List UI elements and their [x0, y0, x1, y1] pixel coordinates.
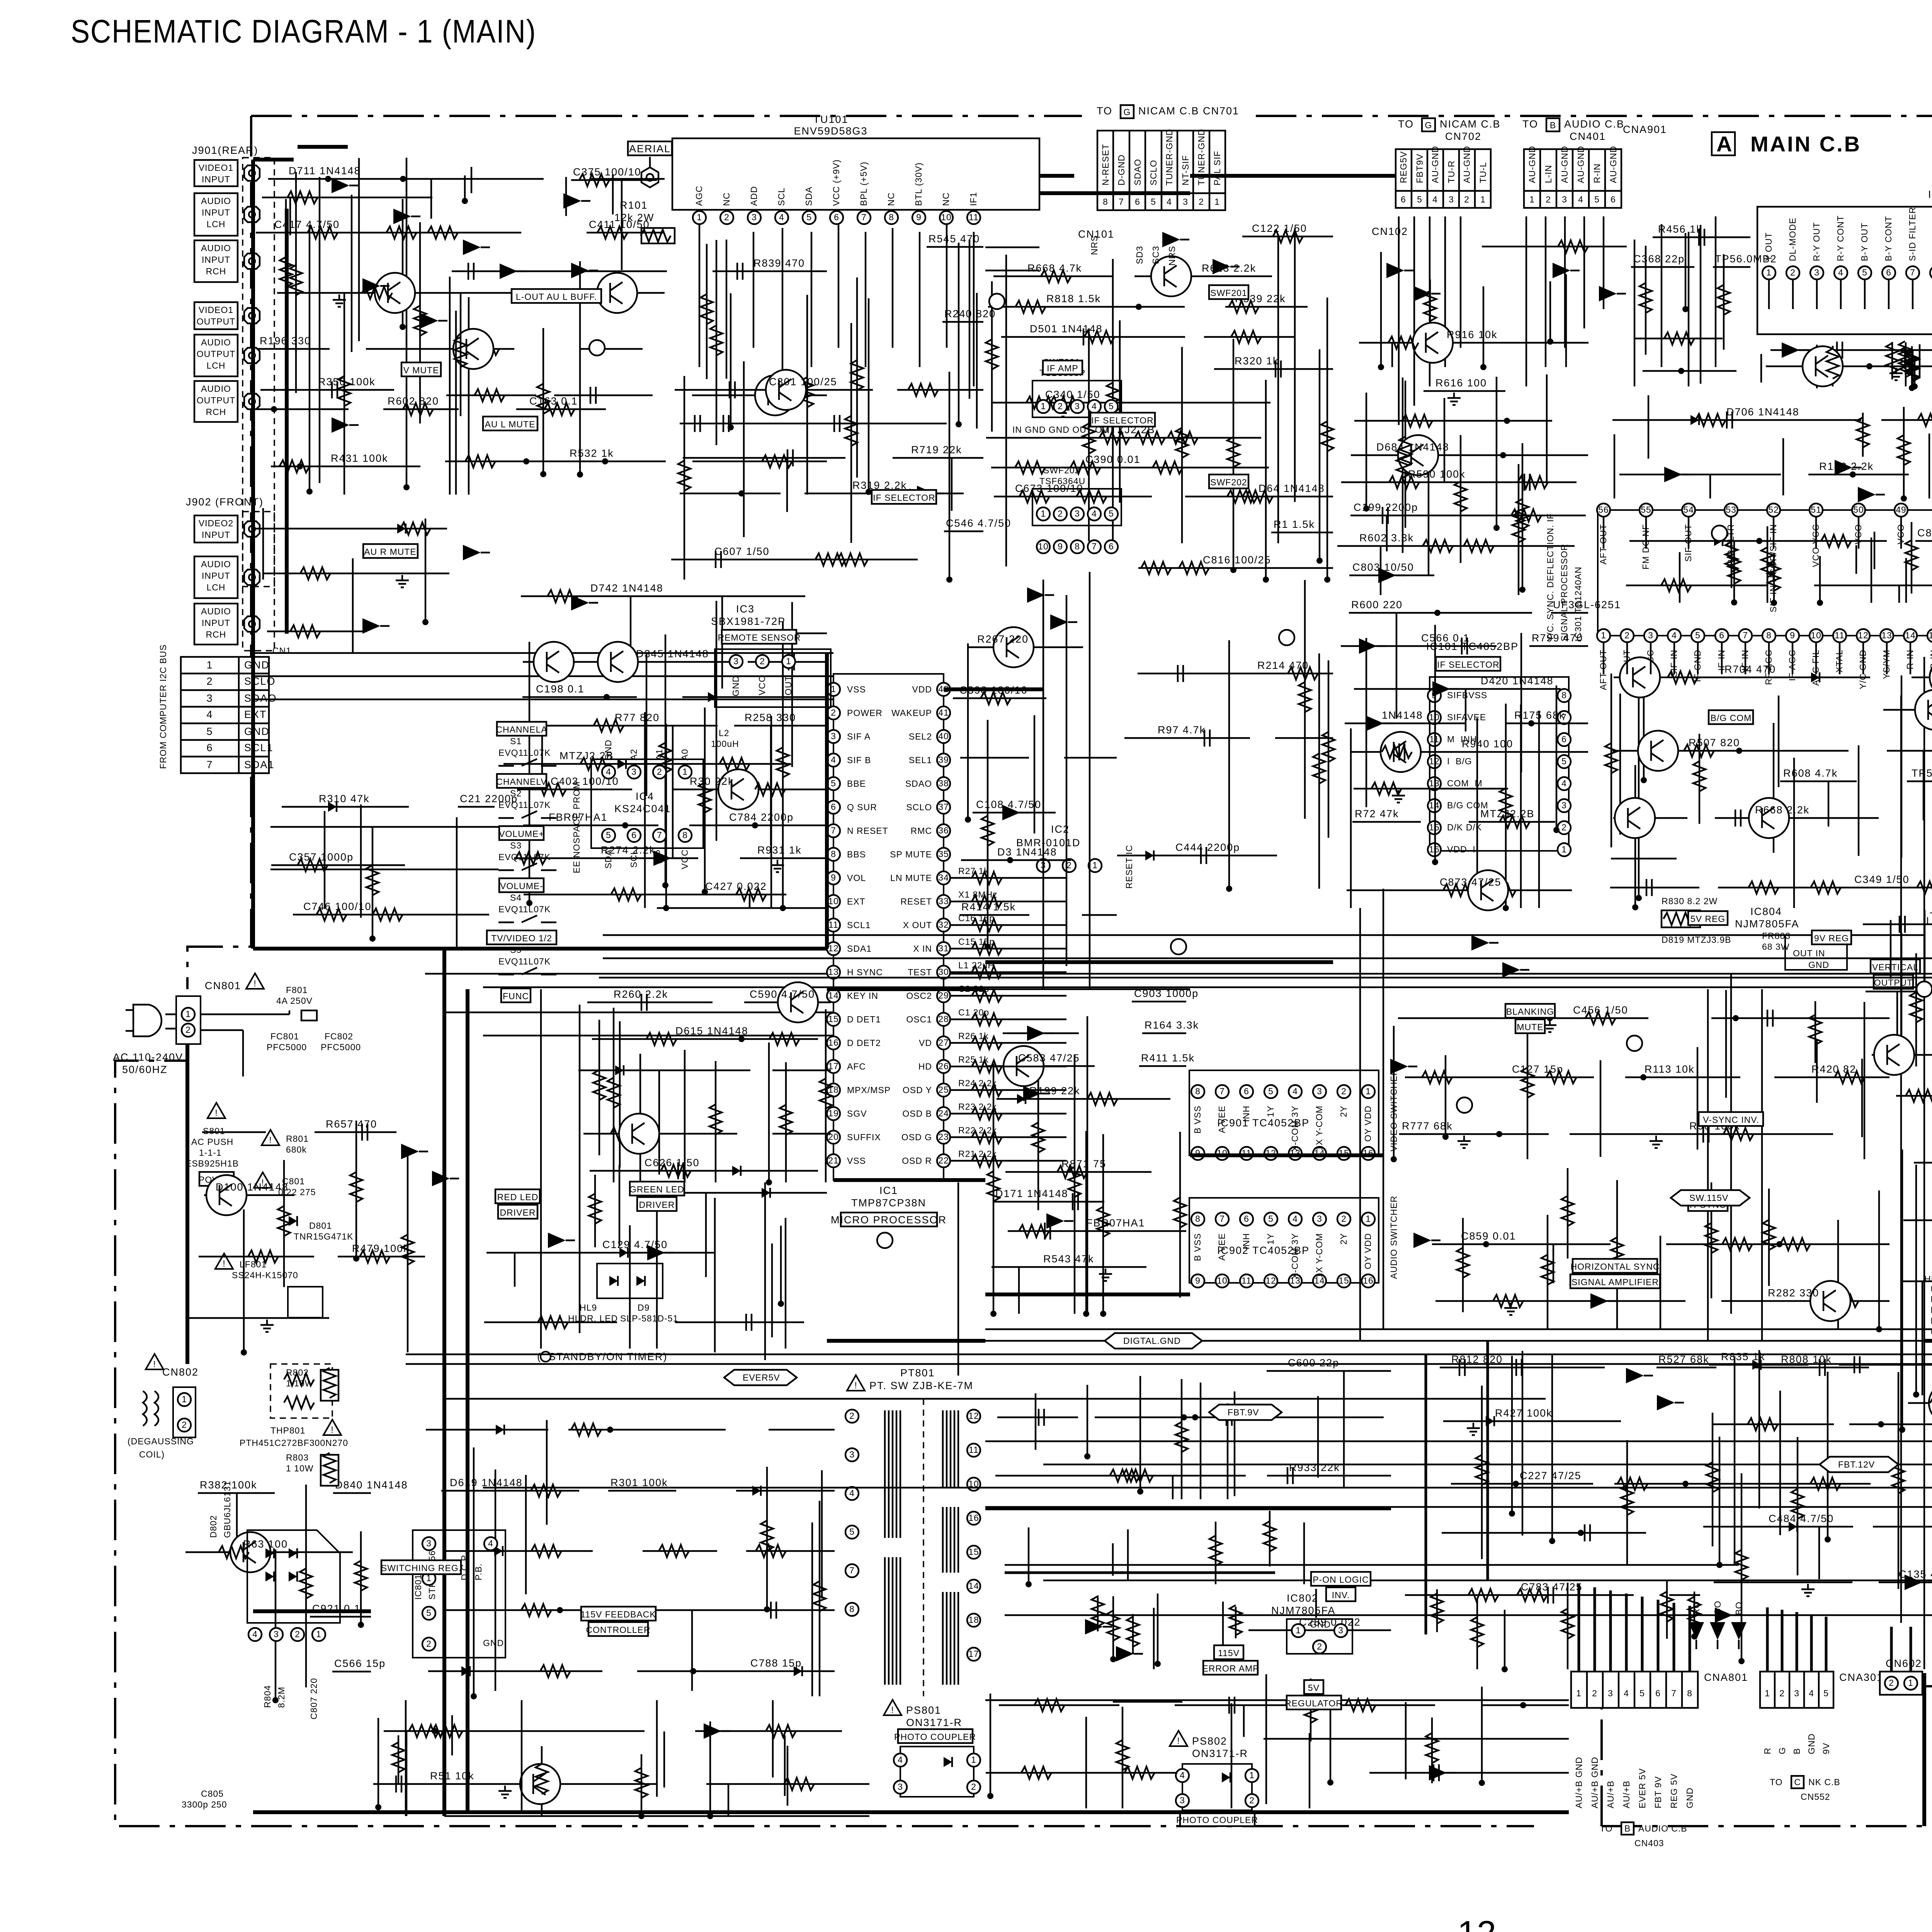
svg-text:1: 1: [786, 656, 791, 666]
svg-text:FBT 9V: FBT 9V: [1653, 1776, 1663, 1808]
svg-text:4: 4: [1838, 267, 1844, 277]
svg-text:R940 100: R940 100: [1462, 738, 1513, 750]
svg-text:18: 18: [968, 1615, 979, 1625]
svg-text:5: 5: [1594, 194, 1600, 204]
svg-text:DRIVER: DRIVER: [500, 1207, 536, 1218]
svg-text:2: 2: [182, 1420, 187, 1430]
svg-text:PFC5000: PFC5000: [267, 1042, 307, 1052]
svg-text:SWF202: SWF202: [1043, 465, 1080, 475]
svg-text:4A 250V: 4A 250V: [276, 996, 313, 1006]
svg-text:SEL1: SEL1: [909, 755, 932, 765]
svg-text:DRIVER: DRIVER: [639, 1200, 675, 1210]
svg-text:GND: GND: [244, 659, 270, 671]
svg-text:2Y: 2Y: [1338, 1105, 1349, 1117]
svg-text:SCLO: SCLO: [906, 802, 932, 812]
svg-text:OUT IN: OUT IN: [1793, 948, 1825, 958]
svg-text:SLP-581D-51: SLP-581D-51: [620, 1313, 678, 1323]
svg-text:D420 1N4148: D420 1N4148: [1481, 675, 1554, 687]
svg-text:R258 330: R258 330: [745, 712, 796, 723]
svg-text:EVQ11L07K: EVQ11L07K: [498, 748, 551, 758]
svg-text:NJM7805FA: NJM7805FA: [1735, 918, 1799, 930]
svg-text:S-ID FILTER: S-ID FILTER: [1907, 207, 1917, 261]
svg-text:3: 3: [1561, 800, 1567, 810]
svg-text:12: 12: [1265, 1276, 1276, 1286]
svg-text:26: 26: [938, 1061, 949, 1071]
svg-text:2: 2: [1341, 1086, 1347, 1096]
svg-text:RESET: RESET: [900, 896, 932, 906]
svg-text:CN802: CN802: [162, 1366, 199, 1378]
svg-text:TO: TO: [1522, 118, 1538, 130]
svg-text:R835 1k: R835 1k: [1721, 1351, 1765, 1362]
svg-text:8: 8: [1561, 690, 1567, 700]
svg-text:CONTROLLER: CONTROLLER: [586, 1625, 650, 1635]
svg-text:1: 1: [1529, 194, 1535, 204]
svg-text:FBT9V: FBT9V: [1415, 153, 1425, 183]
svg-text:VIDEO2: VIDEO2: [199, 518, 233, 528]
svg-text:3: 3: [274, 1629, 279, 1639]
svg-text:AC 110-240V: AC 110-240V: [113, 1051, 183, 1063]
svg-text:INPUT: INPUT: [202, 571, 230, 581]
svg-text:TP56.0MB2: TP56.0MB2: [1912, 767, 1932, 779]
svg-text:1: 1: [1908, 1678, 1913, 1688]
svg-text:2: 2: [1317, 1641, 1322, 1651]
svg-text:2: 2: [971, 1782, 976, 1792]
svg-text:L-IN: L-IN: [1543, 165, 1553, 183]
svg-text:MAIN C.B: MAIN C.B: [1750, 132, 1861, 156]
svg-text:ADD: ADD: [749, 186, 759, 206]
svg-text:4: 4: [488, 1538, 493, 1548]
svg-text:VOL: VOL: [847, 873, 866, 883]
svg-text:AUDIO: AUDIO: [201, 606, 231, 616]
svg-text:SEL2: SEL2: [909, 731, 932, 742]
svg-text:B-Y CONT: B-Y CONT: [1883, 216, 1893, 261]
svg-text:SDAO: SDAO: [244, 692, 277, 704]
svg-text:14: 14: [828, 990, 839, 1000]
svg-text:ON3171-R: ON3171-R: [1192, 1748, 1248, 1759]
svg-text:6: 6: [1655, 1688, 1661, 1698]
svg-text:D819 MTZJ3.9B: D819 MTZJ3.9B: [1662, 935, 1731, 945]
svg-text:FROM COMPUTER I2C BUS: FROM COMPUTER I2C BUS: [158, 644, 168, 769]
svg-text:SC3: SC3: [1151, 246, 1161, 264]
svg-text:C784 2200p: C784 2200p: [729, 811, 794, 823]
svg-text:D171 1N4148: D171 1N4148: [995, 1188, 1068, 1199]
svg-text:14: 14: [968, 1581, 979, 1591]
svg-text:5: 5: [1561, 756, 1567, 766]
svg-text:GREEN LED: GREEN LED: [629, 1184, 684, 1194]
svg-text:3: 3: [898, 1782, 903, 1792]
svg-text:IF SELECTOR: IF SELECTOR: [1091, 415, 1153, 425]
svg-text:6: 6: [831, 802, 836, 812]
svg-text:PT801: PT801: [900, 1367, 935, 1379]
svg-text:( STANDBY/ON TIMER): ( STANDBY/ON TIMER): [537, 1351, 668, 1362]
svg-text:R-IN: R-IN: [1592, 163, 1602, 183]
svg-text:10: 10: [941, 212, 952, 222]
svg-text:6: 6: [1401, 194, 1406, 204]
svg-text:UF3GL-6251: UF3GL-6251: [1553, 599, 1621, 611]
svg-text:GND: GND: [1310, 1619, 1331, 1629]
svg-text:30: 30: [938, 967, 949, 977]
svg-text:R260 2.2k: R260 2.2k: [614, 988, 668, 1000]
svg-text:R803: R803: [286, 1452, 309, 1463]
svg-text:AU/+B: AU/+B: [1621, 1781, 1631, 1808]
svg-text:D742 1N4148: D742 1N4148: [590, 582, 663, 594]
svg-text:6: 6: [1244, 1086, 1249, 1096]
svg-text:TUNER-GND: TUNER-GND: [1164, 129, 1174, 185]
svg-text:RESET IC: RESET IC: [1124, 845, 1134, 889]
svg-text:PFC5000: PFC5000: [321, 1042, 361, 1052]
svg-text:A VEE: A VEE: [1217, 1105, 1227, 1133]
svg-text:12: 12: [968, 1411, 979, 1421]
svg-text:4: 4: [206, 709, 213, 720]
svg-text:TV/VIDEO 1/2: TV/VIDEO 1/2: [491, 933, 552, 943]
svg-text:AUDIO: AUDIO: [201, 243, 231, 253]
svg-text:EE NOSPACE PROM: EE NOSPACE PROM: [571, 781, 582, 873]
svg-text:RCH: RCH: [206, 407, 226, 417]
svg-text:S4: S4: [510, 893, 522, 903]
svg-text:R799 470: R799 470: [1532, 632, 1583, 644]
svg-text:R30 22k: R30 22k: [690, 776, 734, 787]
svg-text:KS24C041I: KS24C041I: [614, 803, 675, 815]
svg-text:GO: GO: [1713, 1600, 1723, 1615]
svg-text:C129 4.7/50: C129 4.7/50: [602, 1239, 668, 1250]
svg-text:R431 100k: R431 100k: [331, 452, 388, 464]
svg-text:IC3: IC3: [736, 603, 755, 615]
svg-text:TU-R: TU-R: [1446, 160, 1456, 183]
svg-text:HL9: HL9: [580, 1303, 597, 1313]
svg-text:1: 1: [1041, 509, 1046, 519]
svg-text:B-Y OUT: B-Y OUT: [1859, 223, 1869, 261]
svg-text:R543 47k: R543 47k: [1043, 1253, 1094, 1265]
svg-text:9V: 9V: [1821, 1743, 1831, 1754]
svg-text:SIGNAL PROCESSOR: SIGNAL PROCESSOR: [1559, 544, 1569, 641]
svg-text:R507 820: R507 820: [1689, 737, 1740, 748]
svg-text:SCL: SCL: [629, 849, 639, 868]
svg-text:3300p 250: 3300p 250: [182, 1799, 227, 1810]
svg-text:C583 47/25: C583 47/25: [1018, 1052, 1080, 1064]
svg-text:R777 68k: R777 68k: [1402, 1120, 1453, 1132]
svg-text:3: 3: [1180, 1795, 1185, 1805]
svg-text:Q SUR: Q SUR: [847, 802, 877, 812]
svg-text:AUDIO: AUDIO: [201, 337, 231, 347]
svg-text:3: 3: [1794, 1688, 1799, 1698]
svg-text:2: 2: [295, 1629, 300, 1639]
svg-text:9: 9: [1195, 1276, 1201, 1286]
svg-text:ERROR AMP: ERROR AMP: [1202, 1663, 1259, 1673]
svg-text:1 10W: 1 10W: [286, 1463, 313, 1473]
svg-text:6: 6: [834, 212, 839, 222]
svg-text:R427 100k: R427 100k: [1495, 1407, 1553, 1419]
svg-text:EXT: EXT: [847, 896, 866, 906]
svg-text:IC1: IC1: [879, 1185, 898, 1196]
svg-text:L-OUT AU L BUFF.: L-OUT AU L BUFF.: [516, 292, 597, 302]
svg-text:EVQ11L07K: EVQ11L07K: [498, 852, 551, 862]
svg-text:5: 5: [1268, 1214, 1274, 1224]
svg-text:3: 3: [1608, 1688, 1613, 1698]
svg-text:EVQ11L07K: EVQ11L07K: [498, 800, 551, 810]
svg-text:1: 1: [1041, 401, 1046, 411]
svg-text:R214 470: R214 470: [1257, 660, 1309, 671]
svg-text:FC802: FC802: [325, 1031, 353, 1041]
svg-text:2: 2: [1058, 401, 1063, 411]
svg-text:5: 5: [1151, 197, 1156, 207]
svg-text:LCH: LCH: [206, 361, 225, 371]
svg-text:V-SYNC INV.: V-SYNC INV.: [1703, 1115, 1759, 1125]
svg-text:R183 2.2k: R183 2.2k: [1819, 461, 1874, 472]
svg-text:PS801: PS801: [906, 1704, 941, 1716]
svg-text:53: 53: [1726, 505, 1736, 515]
svg-text:1X Y-COM: 1X Y-COM: [1314, 1105, 1324, 1151]
svg-text:OUTPUT: OUTPUT: [1874, 978, 1913, 988]
svg-text:C807 220: C807 220: [309, 1678, 319, 1719]
svg-text:OSD G: OSD G: [901, 1132, 932, 1142]
svg-text:AU-GND: AU-GND: [1576, 146, 1586, 183]
svg-text:5: 5: [1268, 1086, 1274, 1096]
svg-text:50/60HZ: 50/60HZ: [122, 1064, 168, 1075]
svg-text:1 10W: 1 10W: [286, 1378, 313, 1388]
svg-text:AC PUSH: AC PUSH: [191, 1137, 233, 1147]
svg-text:11: 11: [828, 920, 838, 930]
svg-text:LN MUTE: LN MUTE: [890, 873, 932, 883]
svg-text:1: 1: [182, 1394, 187, 1404]
svg-text:EVER5V: EVER5V: [743, 1372, 780, 1383]
svg-text:28: 28: [938, 1014, 949, 1024]
svg-text:A1: A1: [654, 749, 664, 760]
svg-text:4: 4: [1561, 778, 1567, 788]
svg-text:R668 2.2k: R668 2.2k: [1755, 804, 1810, 816]
svg-text:1: 1: [1480, 194, 1486, 204]
svg-text:CN801: CN801: [205, 980, 241, 992]
svg-text:REG 5V: REG 5V: [1669, 1774, 1679, 1808]
svg-text:CHANNELV: CHANNELV: [496, 777, 547, 787]
svg-text:2: 2: [185, 1025, 191, 1035]
svg-text:R196 330: R196 330: [260, 335, 311, 347]
svg-text:BO: BO: [1734, 1602, 1744, 1615]
svg-text:IF1: IF1: [968, 192, 978, 206]
svg-text:CN403: CN403: [1634, 1838, 1664, 1848]
svg-text:INV.: INV.: [1332, 1590, 1350, 1600]
svg-text:2: 2: [1199, 197, 1204, 207]
svg-text:AUDIO: AUDIO: [201, 196, 231, 206]
svg-text:R63 100: R63 100: [243, 1538, 288, 1550]
svg-text:TU101: TU101: [813, 114, 848, 125]
svg-text:GND: GND: [1808, 960, 1829, 970]
svg-text:R97 4.7k: R97 4.7k: [1158, 724, 1206, 736]
svg-text:11: 11: [969, 1445, 979, 1455]
svg-text:2: 2: [724, 212, 730, 222]
svg-text:8: 8: [1195, 1086, 1201, 1096]
svg-text:INPUT: INPUT: [202, 207, 230, 218]
svg-text:P-ON LOGIC: P-ON LOGIC: [1313, 1575, 1369, 1585]
svg-text:6: 6: [1719, 630, 1725, 640]
svg-text:VSS: VSS: [847, 684, 866, 694]
svg-text:R-Y CONT: R-Y CONT: [1835, 215, 1845, 261]
svg-text:R77 820: R77 820: [615, 712, 660, 723]
svg-text:SDAO: SDAO: [905, 779, 932, 789]
svg-text:C427 0.022: C427 0.022: [705, 881, 767, 892]
svg-text:1: 1: [316, 1629, 321, 1639]
svg-text:FBR07HA1: FBR07HA1: [1086, 1217, 1145, 1229]
svg-text:RCH: RCH: [206, 629, 226, 639]
svg-text:1: 1: [697, 212, 702, 222]
svg-text:4: 4: [1432, 194, 1438, 204]
svg-text:TO: TO: [1770, 1777, 1783, 1787]
svg-text:680k: 680k: [286, 1145, 307, 1155]
svg-text:6: 6: [1109, 541, 1114, 551]
svg-text:BTL (30V): BTL (30V): [913, 162, 923, 206]
svg-text:EVQ11L07K: EVQ11L07K: [498, 904, 551, 914]
svg-text:INH: INH: [1241, 1233, 1251, 1250]
svg-text:GND: GND: [731, 675, 741, 696]
svg-text:NRS: NRS: [1089, 235, 1099, 255]
svg-text:WAKEUP: WAKEUP: [891, 708, 932, 718]
svg-text:SDA1: SDA1: [847, 944, 872, 954]
svg-text:1N4148: 1N4148: [1382, 709, 1423, 721]
svg-text:WP: WP: [654, 849, 664, 864]
svg-text:C566 15p: C566 15p: [334, 1658, 386, 1669]
svg-text:C15 15p: C15 15p: [958, 937, 995, 947]
svg-text:AU/+B GND: AU/+B GND: [1574, 1757, 1584, 1808]
svg-text:TU-L: TU-L: [1478, 162, 1488, 183]
svg-text:2: 2: [1790, 267, 1796, 277]
svg-text:B: B: [1624, 1823, 1631, 1833]
svg-text:REG5V: REG5V: [1398, 151, 1408, 183]
svg-text:4: 4: [252, 1629, 258, 1639]
svg-text:8: 8: [849, 1604, 855, 1614]
svg-text:SIFAVEE: SIFAVEE: [1447, 712, 1486, 722]
svg-text:OSC2: OSC2: [906, 991, 932, 1001]
svg-text:C566 0.1: C566 0.1: [1421, 632, 1470, 644]
svg-text:3: 3: [1317, 1086, 1322, 1096]
svg-text:100uH: 100uH: [711, 739, 739, 749]
svg-text:SDA: SDA: [804, 187, 814, 206]
svg-text:2: 2: [1561, 822, 1567, 832]
svg-text:X IN: X IN: [913, 944, 932, 954]
svg-text:15: 15: [968, 1547, 979, 1557]
svg-text:3: 3: [1814, 267, 1820, 277]
svg-text:GND: GND: [1806, 1733, 1816, 1754]
svg-text:7: 7: [861, 212, 867, 222]
svg-text:R616 100: R616 100: [1435, 377, 1487, 389]
svg-text:39: 39: [938, 755, 949, 765]
svg-text:S2: S2: [510, 788, 522, 798]
svg-text:50: 50: [1853, 505, 1864, 515]
svg-text:11: 11: [1242, 1276, 1252, 1286]
svg-text:D9: D9: [638, 1303, 650, 1313]
svg-text:DIGTAL.GND: DIGTAL.GND: [1123, 1336, 1181, 1346]
svg-text:C349 1/50: C349 1/50: [1854, 874, 1910, 885]
svg-text:2: 2: [1058, 509, 1063, 519]
svg-text:B/G COM: B/G COM: [1711, 713, 1752, 723]
svg-text:SUFFIX: SUFFIX: [847, 1132, 881, 1142]
svg-text:TO: TO: [1600, 1823, 1613, 1833]
svg-text:SGV: SGV: [847, 1109, 867, 1119]
svg-text:D840 1N4148: D840 1N4148: [335, 1479, 408, 1491]
svg-text:6: 6: [206, 742, 213, 753]
svg-text:D706 1N4148: D706 1N4148: [1726, 406, 1799, 418]
svg-text:NJM7805FA: NJM7805FA: [1271, 1605, 1336, 1616]
svg-text:SS24H-K15070: SS24H-K15070: [232, 1270, 298, 1280]
svg-text:INPUT: INPUT: [202, 530, 230, 540]
svg-text:C880 2200p: C880 2200p: [1917, 527, 1932, 539]
svg-text:VIDEO1: VIDEO1: [199, 305, 233, 315]
svg-text:41: 41: [938, 707, 949, 718]
svg-text:21: 21: [828, 1155, 839, 1165]
svg-text:IC4: IC4: [636, 791, 654, 802]
svg-text:3: 3: [1317, 1214, 1322, 1224]
svg-text:D801: D801: [309, 1221, 332, 1231]
svg-text:R830 8.2 2W: R830 8.2 2W: [1662, 896, 1718, 906]
svg-text:SP MUTE: SP MUTE: [890, 849, 932, 859]
svg-text:2Y: 2Y: [1338, 1233, 1349, 1245]
svg-text:SCLO: SCLO: [244, 675, 276, 687]
svg-text:R602 3.3k: R602 3.3k: [1359, 532, 1414, 544]
svg-text:R1 1.5k: R1 1.5k: [1274, 519, 1315, 530]
svg-text:4: 4: [1293, 1086, 1298, 1096]
svg-text:B VSS: B VSS: [1192, 1233, 1202, 1261]
svg-text:3: 3: [1449, 194, 1454, 204]
svg-text:R25 1k: R25 1k: [958, 1054, 989, 1065]
svg-text:R602 820: R602 820: [388, 395, 439, 407]
svg-text:AU-GND: AU-GND: [1608, 146, 1618, 183]
svg-text:VERTICAL: VERTICAL: [1872, 962, 1918, 972]
svg-text:R21 2.2k: R21 2.2k: [958, 1149, 997, 1159]
svg-text:8: 8: [1075, 541, 1080, 551]
svg-text:3: 3: [1075, 509, 1080, 519]
svg-text:1Y: 1Y: [1265, 1105, 1276, 1117]
svg-text:R175 68k: R175 68k: [1514, 709, 1565, 721]
svg-text:4: 4: [1180, 1770, 1185, 1780]
svg-text:AU-GND: AU-GND: [1527, 146, 1537, 183]
svg-text:C417 4.7/50: C417 4.7/50: [274, 219, 340, 230]
svg-text:D DET1: D DET1: [847, 1014, 881, 1024]
svg-text:115V: 115V: [1218, 1648, 1240, 1658]
svg-text:ENV59D58G3: ENV59D58G3: [794, 125, 867, 137]
svg-text:3: 3: [1648, 630, 1653, 640]
svg-text:C301 100/25: C301 100/25: [769, 376, 837, 388]
svg-text:CNA301: CNA301: [1839, 1672, 1883, 1683]
svg-text:SIGNAL AMPLIFIER: SIGNAL AMPLIFIER: [1571, 1277, 1659, 1287]
svg-text:SWITCHING REG.: SWITCHING REG.: [381, 1563, 461, 1573]
svg-text:1: 1: [1366, 1214, 1371, 1224]
svg-text:OSD R: OSD R: [902, 1156, 932, 1166]
svg-text:7: 7: [849, 1565, 855, 1575]
svg-text:INPUT: INPUT: [202, 255, 230, 265]
svg-text:VIDEO1: VIDEO1: [199, 163, 233, 173]
svg-text:IF SELECTOR: IF SELECTOR: [1437, 660, 1499, 670]
svg-text:11: 11: [1835, 630, 1845, 640]
svg-text:2: 2: [1779, 1688, 1785, 1698]
svg-text:2: 2: [1624, 630, 1630, 640]
svg-text:SW.115V: SW.115V: [1689, 1193, 1728, 1203]
svg-text:5: 5: [606, 830, 611, 840]
svg-text:4: 4: [1293, 1214, 1298, 1224]
svg-text:1: 1: [1601, 630, 1606, 640]
svg-text:R804: R804: [262, 1685, 272, 1708]
svg-text:C626 1/50: C626 1/50: [645, 1157, 700, 1168]
svg-text:3: 3: [849, 1449, 855, 1459]
svg-text:1-1-1: 1-1-1: [199, 1148, 222, 1158]
svg-text:4: 4: [606, 767, 611, 777]
svg-text:2: 2: [1546, 194, 1551, 204]
svg-text:33: 33: [938, 896, 949, 906]
svg-text:C444 2200p: C444 2200p: [1175, 842, 1240, 853]
svg-text:CNA901: CNA901: [1623, 124, 1667, 135]
svg-text:PT. SW ZJB-KE-7M: PT. SW ZJB-KE-7M: [869, 1380, 973, 1391]
svg-text:R310 47k: R310 47k: [319, 793, 370, 804]
svg-text:D345 1N4148: D345 1N4148: [636, 648, 709, 660]
svg-text:DL-MODE: DL-MODE: [1787, 218, 1798, 261]
svg-text:CN102: CN102: [1372, 226, 1408, 237]
